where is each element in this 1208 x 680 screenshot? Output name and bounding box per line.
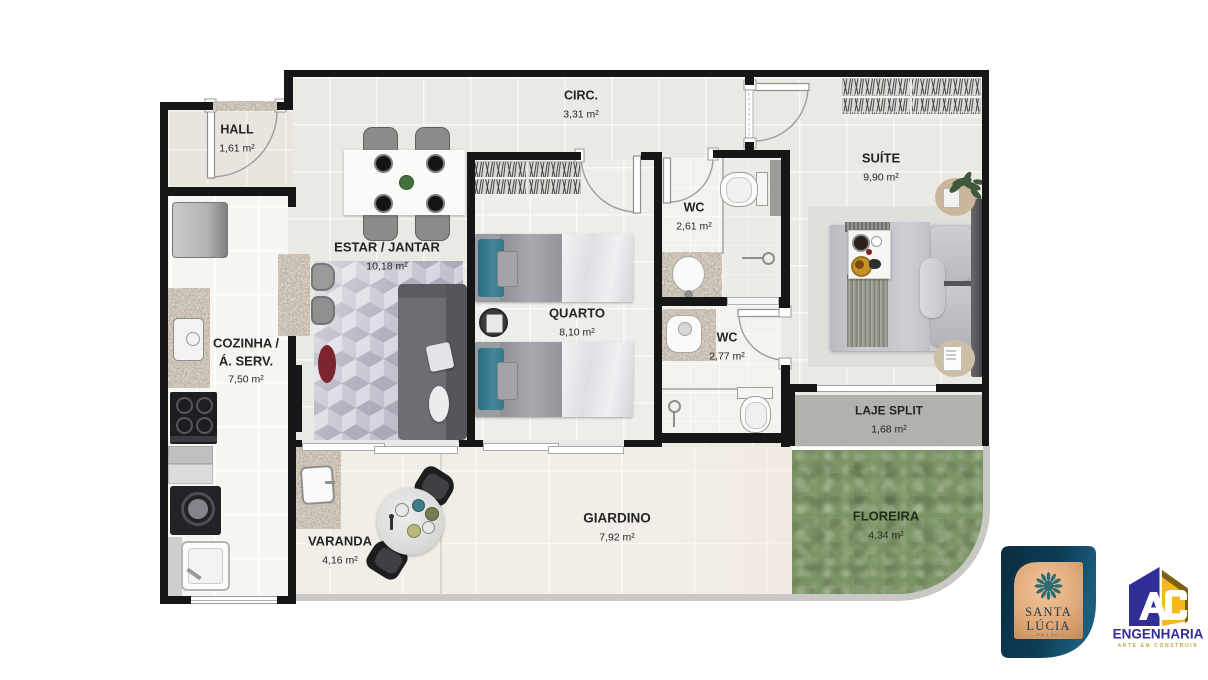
- svg-text:LÚCIA: LÚCIA: [1026, 619, 1070, 633]
- svg-text:ARTE EM CONSTRUIR: ARTE EM CONSTRUIR: [1118, 643, 1199, 649]
- svg-text:—PRADO—: —PRADO—: [1030, 633, 1066, 638]
- svg-text:ENGENHARIA: ENGENHARIA: [1113, 627, 1204, 642]
- svg-text:SANTA: SANTA: [1025, 605, 1072, 619]
